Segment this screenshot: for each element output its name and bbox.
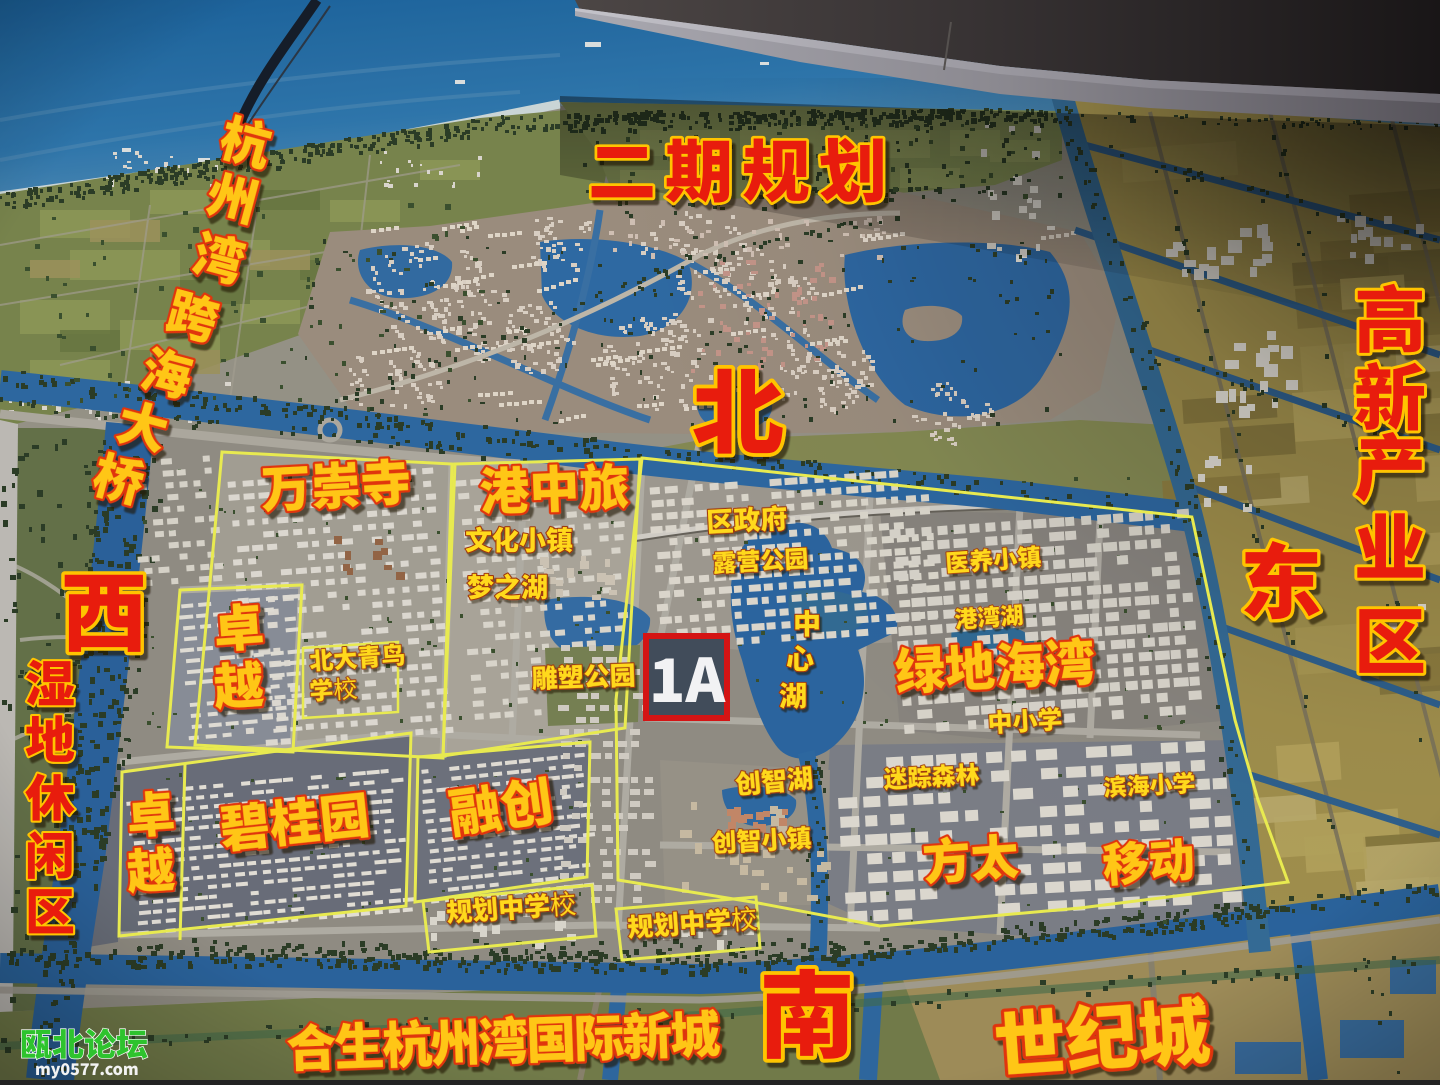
svg-text:中小学: 中小学 — [987, 700, 1064, 740]
svg-text:区: 区 — [25, 873, 75, 945]
svg-text:滨海小学: 滨海小学 — [1103, 764, 1197, 803]
svg-text:北: 北 — [692, 340, 784, 473]
svg-text:my0577.com: my0577.com — [35, 1056, 139, 1080]
svg-text:湖: 湖 — [779, 675, 807, 715]
svg-text:露营公园: 露营公园 — [712, 539, 810, 579]
svg-text:医养小镇: 医养小镇 — [944, 537, 1042, 579]
svg-text:东: 东 — [1240, 517, 1322, 636]
svg-text:方太: 方太 — [920, 817, 1021, 894]
svg-text:越: 越 — [211, 645, 266, 720]
svg-text:世纪城: 世纪城 — [990, 973, 1213, 1080]
svg-text:梦之湖: 梦之湖 — [467, 566, 548, 605]
svg-text:融创: 融创 — [444, 759, 557, 848]
svg-text:南: 南 — [759, 939, 855, 1078]
svg-text:创智湖: 创智湖 — [733, 758, 814, 802]
svg-text:区政府: 区政府 — [705, 497, 788, 540]
svg-text:港中旅: 港中旅 — [478, 448, 630, 525]
svg-text:绿地海湾: 绿地海湾 — [893, 623, 1096, 705]
svg-text:文化小镇: 文化小镇 — [465, 519, 573, 558]
svg-text:业: 业 — [1354, 490, 1426, 595]
svg-text:区: 区 — [1354, 584, 1426, 689]
svg-text:迷踪森林: 迷踪森林 — [883, 755, 981, 795]
svg-text:合生杭州湾国际新城: 合生杭州湾国际新城 — [285, 995, 721, 1080]
svg-text:雕塑公园: 雕塑公园 — [531, 655, 636, 696]
svg-text:学校: 学校 — [308, 669, 358, 707]
svg-text:二期规划: 二期规划 — [588, 117, 896, 216]
svg-text:越: 越 — [124, 830, 177, 903]
svg-text:中: 中 — [793, 603, 821, 643]
svg-text:1A: 1A — [649, 633, 727, 720]
svg-text:心: 心 — [786, 638, 814, 678]
svg-text:创智小镇: 创智小镇 — [711, 819, 813, 860]
svg-text:万崇寺: 万崇寺 — [259, 443, 413, 523]
svg-text:移动: 移动 — [1100, 824, 1196, 896]
svg-text:港湾湖: 港湾湖 — [953, 596, 1024, 635]
